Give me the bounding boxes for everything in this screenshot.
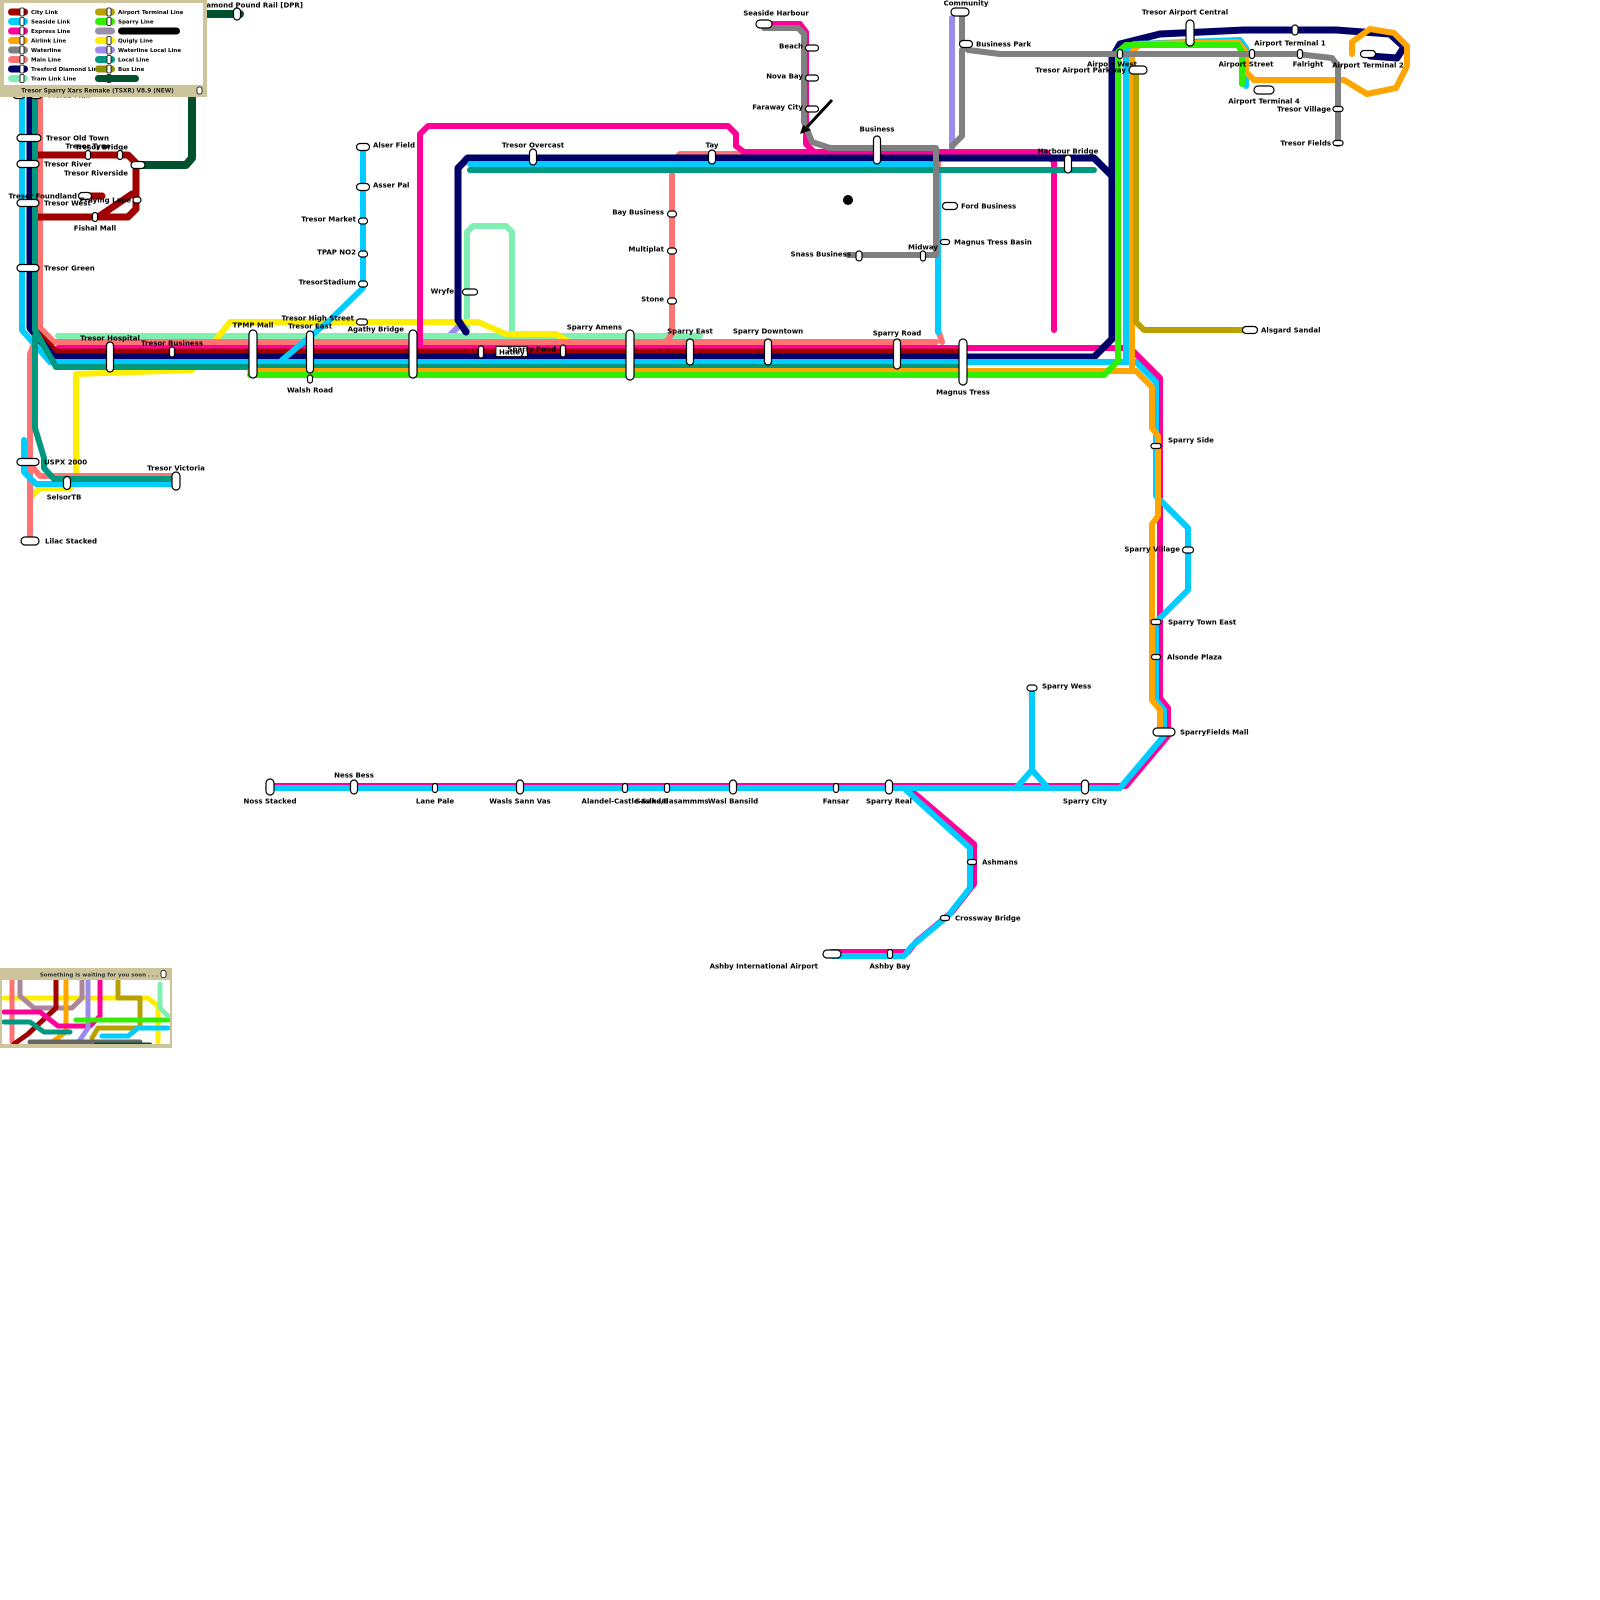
legend-label: City Link — [31, 10, 58, 16]
station-tresor-diamond-pound-rail-dpr- — [234, 8, 241, 20]
station-business — [874, 136, 881, 164]
station-label: Tresor Overcast — [502, 142, 565, 150]
inset-header-pill-icon — [161, 971, 166, 978]
station-uspx-2000 — [17, 459, 39, 466]
station-sparry-amens — [626, 330, 634, 380]
station-tresor-bridge — [118, 151, 123, 160]
station-airport-terminal-2 — [1361, 51, 1376, 58]
inset-header-text: Something is waiting for you soon . . . — [40, 973, 158, 979]
station-label: Crossway Bridge — [955, 915, 1021, 923]
station-fishal-mall — [93, 213, 98, 222]
station-snass-business — [856, 251, 862, 261]
station-fansar — [834, 784, 839, 793]
station-label: Sparry Town East — [1168, 619, 1237, 627]
station-saslke-basammms — [665, 784, 670, 793]
legend-label: Waterline Local Line — [118, 48, 181, 54]
station-sparry-east — [687, 339, 694, 365]
station-label: Magnus Tress Basin — [954, 239, 1032, 247]
station-sparry-wess — [1027, 685, 1037, 691]
station-airport-west — [1118, 50, 1123, 59]
station-label: Beach — [779, 43, 803, 51]
legend-label: Quigly Line — [118, 39, 153, 45]
station-label: Tresor East — [288, 323, 333, 331]
station-label: Tresor Village — [1277, 106, 1331, 114]
station-tay — [709, 150, 716, 164]
station-tresor-fields — [1333, 141, 1343, 146]
station-agathy-bridge — [409, 330, 417, 378]
station-sparry-real — [886, 780, 893, 794]
station-alandel-castle-sandal — [623, 784, 628, 793]
station-sparry-side — [1151, 444, 1161, 449]
station-ford-business — [943, 203, 958, 210]
black-dot-marker — [843, 195, 853, 205]
station-label: Snass Business — [791, 251, 851, 259]
legend: City LinkAirport Terminal LineSeaside Li… — [0, 0, 207, 97]
transit-map-canvas: Fields MallTresor Old TownTresor RiverTr… — [0, 0, 1600, 1600]
station-label: Praying Lane — [80, 197, 132, 205]
station-label: Harbour Bridge — [1038, 148, 1099, 156]
station-label: Sparry Side — [1168, 437, 1214, 445]
station-lane-pale — [433, 784, 438, 793]
station-tresor-old-town — [17, 135, 41, 142]
map-background — [0, 0, 1600, 1600]
station-label: Tresor Market — [301, 216, 356, 224]
station-label: Business Park — [976, 41, 1032, 49]
station-multiplat — [668, 248, 677, 254]
station-tresor-east — [307, 331, 314, 373]
station-tresor-hospital — [107, 342, 114, 372]
station-label: Magnus Tress — [936, 389, 990, 397]
station-label: Stone — [641, 296, 664, 304]
station-praying-lane — [133, 197, 141, 203]
station-label: Asser Pal — [373, 182, 409, 190]
station-label: Ashmans — [982, 859, 1018, 867]
station-label: Alser Field — [373, 142, 415, 150]
station-label: Saslke/Basammms — [635, 798, 708, 806]
station-alsgard-sandal — [1243, 327, 1258, 334]
station-airport-terminal-1 — [1292, 25, 1298, 35]
station-magnus-tress — [959, 339, 967, 385]
legend-label: Waterline — [31, 48, 61, 54]
station-asser-pal — [357, 184, 370, 191]
station-label: Ashby Bay — [870, 963, 911, 971]
station-label: Faraway City — [752, 104, 803, 112]
station-beach — [806, 45, 819, 51]
station-label: Sparry Amens — [567, 324, 622, 332]
legend-label: Tresford Diamond Line — [31, 67, 101, 73]
station-harbour-bridge — [1065, 155, 1072, 173]
station-bay-business — [668, 211, 677, 217]
station-label: Tresor Bridge — [75, 144, 128, 152]
station-label: SelsorTB — [47, 494, 82, 502]
station-label: Sparry Real — [866, 798, 912, 806]
station-label: Tresor Victoria — [147, 465, 205, 473]
station-label: Community — [944, 0, 989, 8]
station-label: Wasl Bansild — [708, 798, 758, 806]
legend-label: Sparry Line — [118, 20, 154, 26]
station-midway — [921, 251, 926, 261]
station-label: Airport Terminal 4 — [1228, 98, 1300, 106]
station-sparry-downtown — [765, 339, 772, 365]
station-label: Wasls Sann Vas — [489, 798, 550, 806]
station-label: Tresor Fields — [1280, 140, 1331, 148]
legend-label: Seaside Link — [31, 20, 70, 26]
station-label: Sparry Pond — [507, 346, 556, 354]
station-tresor-market — [359, 218, 368, 224]
station-label: Falright — [1293, 61, 1324, 69]
station-business-park — [960, 41, 973, 48]
station-label: Bay Business — [612, 209, 664, 217]
legend-label: Tram Link Line — [31, 77, 76, 83]
station-label: Multiplat — [628, 246, 664, 254]
station-label: SparryFields Mall — [1180, 729, 1249, 737]
station-tresor-high-street — [357, 319, 368, 325]
station-label: Tresor Green — [44, 265, 95, 273]
station-ness-bess — [351, 780, 358, 794]
station-ashby-bay — [888, 950, 893, 959]
station-label: Tresor Airport Central — [1142, 9, 1228, 17]
station-label: Lilac Stacked — [45, 538, 97, 546]
station-label: Tresor Airport Parkway — [1035, 67, 1126, 75]
station-label: TPMP Mall — [233, 322, 274, 330]
station-ashmans — [968, 860, 977, 865]
station-selsortb — [64, 477, 71, 490]
station-seaside-harbour — [756, 20, 772, 28]
station-wasl-bansild — [730, 780, 737, 794]
station-label: Agathy Bridge — [348, 326, 405, 334]
station-tresor-green — [17, 265, 39, 272]
station-label: Tresor Business — [141, 340, 203, 348]
transit-map: Fields MallTresor Old TownTresor RiverTr… — [0, 0, 1600, 1600]
teaser-inset: Something is waiting for you soon . . . — [0, 968, 172, 1048]
legend-label: Express Line — [31, 29, 70, 35]
station-label: Alsonde Plaza — [1167, 654, 1222, 662]
legend-label: Main Line — [31, 58, 61, 64]
station-airport-street — [1250, 50, 1255, 59]
legend-title-pill-icon — [197, 87, 202, 94]
station-hatley — [479, 346, 484, 358]
station-label: TresorStadium — [299, 279, 356, 287]
station-tresor-business — [170, 347, 175, 357]
station-lilac-stacked — [21, 537, 39, 545]
station-label: Ness Bess — [334, 772, 374, 780]
station-wasls-sann-vas — [517, 780, 524, 794]
station-falright — [1298, 50, 1303, 59]
station-label: Lane Pale — [416, 798, 454, 806]
station-tresor-west — [17, 200, 39, 207]
station-tresor-airport-parkway — [1129, 66, 1147, 74]
station-noss-stacked — [266, 779, 274, 795]
station-tresor-victoria — [172, 472, 180, 490]
station-label: Alsgard Sandal — [1261, 327, 1321, 335]
station-airport-terminal-4 — [1254, 86, 1274, 94]
station-label: Tresor Foundland — [9, 193, 77, 201]
station-label: Sparry East — [667, 328, 713, 336]
station-label: Airport Terminal 1 — [1254, 40, 1326, 48]
station-sparry-city — [1082, 780, 1089, 794]
station-community — [951, 8, 969, 16]
station-label: Airport Terminal 2 — [1332, 62, 1404, 70]
station-label: Airport Street — [1218, 61, 1274, 69]
station-sparry-village — [1183, 547, 1194, 553]
station-label: Noss Stacked — [244, 798, 297, 806]
station-wryfe — [463, 289, 478, 295]
station-label: Sparry City — [1063, 798, 1108, 806]
station-label: Tresor Old Town — [46, 135, 109, 143]
station-label: Ashby International Airport — [710, 963, 819, 971]
station-label: USPX 2000 — [44, 459, 87, 467]
station-tpap-no2 — [359, 251, 368, 257]
station-sparry-road — [894, 339, 901, 369]
station-label: Tresor Hospital — [80, 335, 140, 343]
station-label: Tresor High Street — [282, 315, 355, 323]
station-label: Nova Bay — [766, 73, 803, 81]
station-crossway-bridge — [941, 916, 950, 921]
station-walsh-road — [308, 375, 313, 383]
station-tpmp-mall — [249, 330, 257, 378]
station-magnus-tress-basin — [941, 240, 950, 245]
station-label: Wryfe — [431, 288, 455, 296]
station-label: Tresor River — [44, 161, 92, 169]
station-sparry-town-east — [1151, 620, 1161, 625]
station-tresor-village — [1333, 107, 1343, 112]
station-label: Business — [860, 126, 895, 134]
station-label: Tresor Riverside — [64, 170, 128, 178]
station-tresor-riverside — [131, 162, 145, 169]
station-label: Midway — [908, 244, 938, 252]
station-label: Ford Business — [961, 203, 1016, 211]
legend-label: Bus Line — [118, 67, 145, 73]
station-label: Seaside Harbour — [743, 10, 809, 18]
station-alser-field — [357, 144, 370, 151]
station-label: Fansar — [823, 798, 850, 806]
station-faraway-city — [806, 106, 819, 112]
station-nova-bay — [806, 75, 819, 81]
legend-label: Airlink Line — [31, 39, 66, 45]
station-tresor-river — [17, 161, 39, 168]
station-label: Fishal Mall — [74, 225, 116, 233]
station-sparryfields-mall — [1153, 728, 1175, 736]
legend-title: Tresor Sparry Xars Remake (TSXR) V8.9 (N… — [21, 89, 174, 95]
station-tresor-tyne — [86, 151, 91, 160]
station-tresor-overcast — [530, 149, 537, 165]
station-label: Sparry Road — [873, 330, 922, 338]
station-sparry-pond — [561, 345, 566, 357]
station-label: Tay — [706, 142, 719, 150]
station-label: Walsh Road — [287, 387, 333, 395]
station-ashby-international-airport — [823, 950, 841, 958]
station-alsonde-plaza — [1152, 655, 1161, 660]
station-label: TPAP NO2 — [317, 249, 356, 257]
legend-label: Airport Terminal Line — [118, 10, 184, 16]
station-tresor-airport-central — [1186, 20, 1194, 46]
station-label: Sparry Village — [1124, 546, 1180, 554]
station-stone — [668, 298, 677, 304]
legend-label: Local Line — [118, 58, 149, 64]
station-tresorstadium — [359, 281, 368, 287]
station-label: Sparry Wess — [1042, 683, 1091, 691]
station-label: Sparry Downtown — [733, 328, 803, 336]
